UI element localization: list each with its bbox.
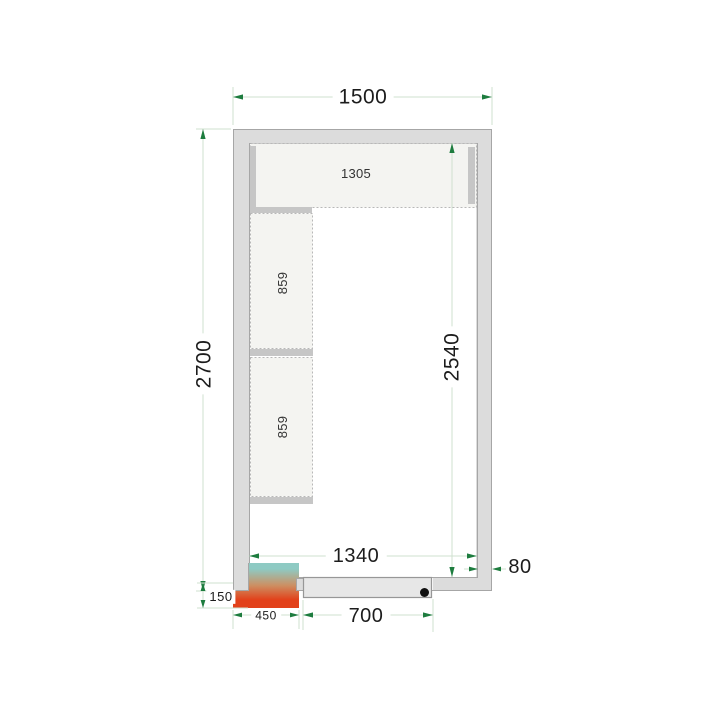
door-handle-dot: [420, 588, 429, 597]
dim-label-inner-width: 1340: [326, 545, 387, 567]
shelf-label-left-1: 859: [276, 272, 290, 295]
dim-label-outer-depth: 2700: [192, 334, 215, 395]
wall-left-over-unit: [233, 563, 249, 591]
shelf-bracket-middle: [250, 349, 313, 356]
door-leaf: [304, 578, 432, 598]
wall-right: [476, 129, 492, 591]
shelf-bracket-top-left: [250, 146, 256, 207]
dim-label-door-width: 700: [342, 605, 391, 627]
dim-label-outer-width: 1500: [333, 85, 394, 108]
dim-label-unit-width: 450: [251, 609, 281, 622]
dim-label-unit-protrusion: 150: [206, 590, 235, 604]
shelf-label-left-2: 859: [276, 416, 290, 439]
shelf-bracket-top-right: [468, 147, 475, 204]
shelf-bracket-horizontal: [250, 207, 312, 213]
wall-left: [233, 129, 249, 591]
wall-top: [233, 129, 492, 143]
wall-bottom-right: [433, 578, 492, 591]
shelf-bracket-bottom: [250, 497, 313, 504]
dim-label-wall-thickness: 80: [501, 556, 538, 578]
floor-plan-canvas: 1500 2700 2540 1340 80 700 450 150 1305 …: [0, 0, 720, 720]
dim-label-inner-depth: 2540: [440, 327, 463, 388]
shelf-label-top: 1305: [341, 167, 371, 181]
